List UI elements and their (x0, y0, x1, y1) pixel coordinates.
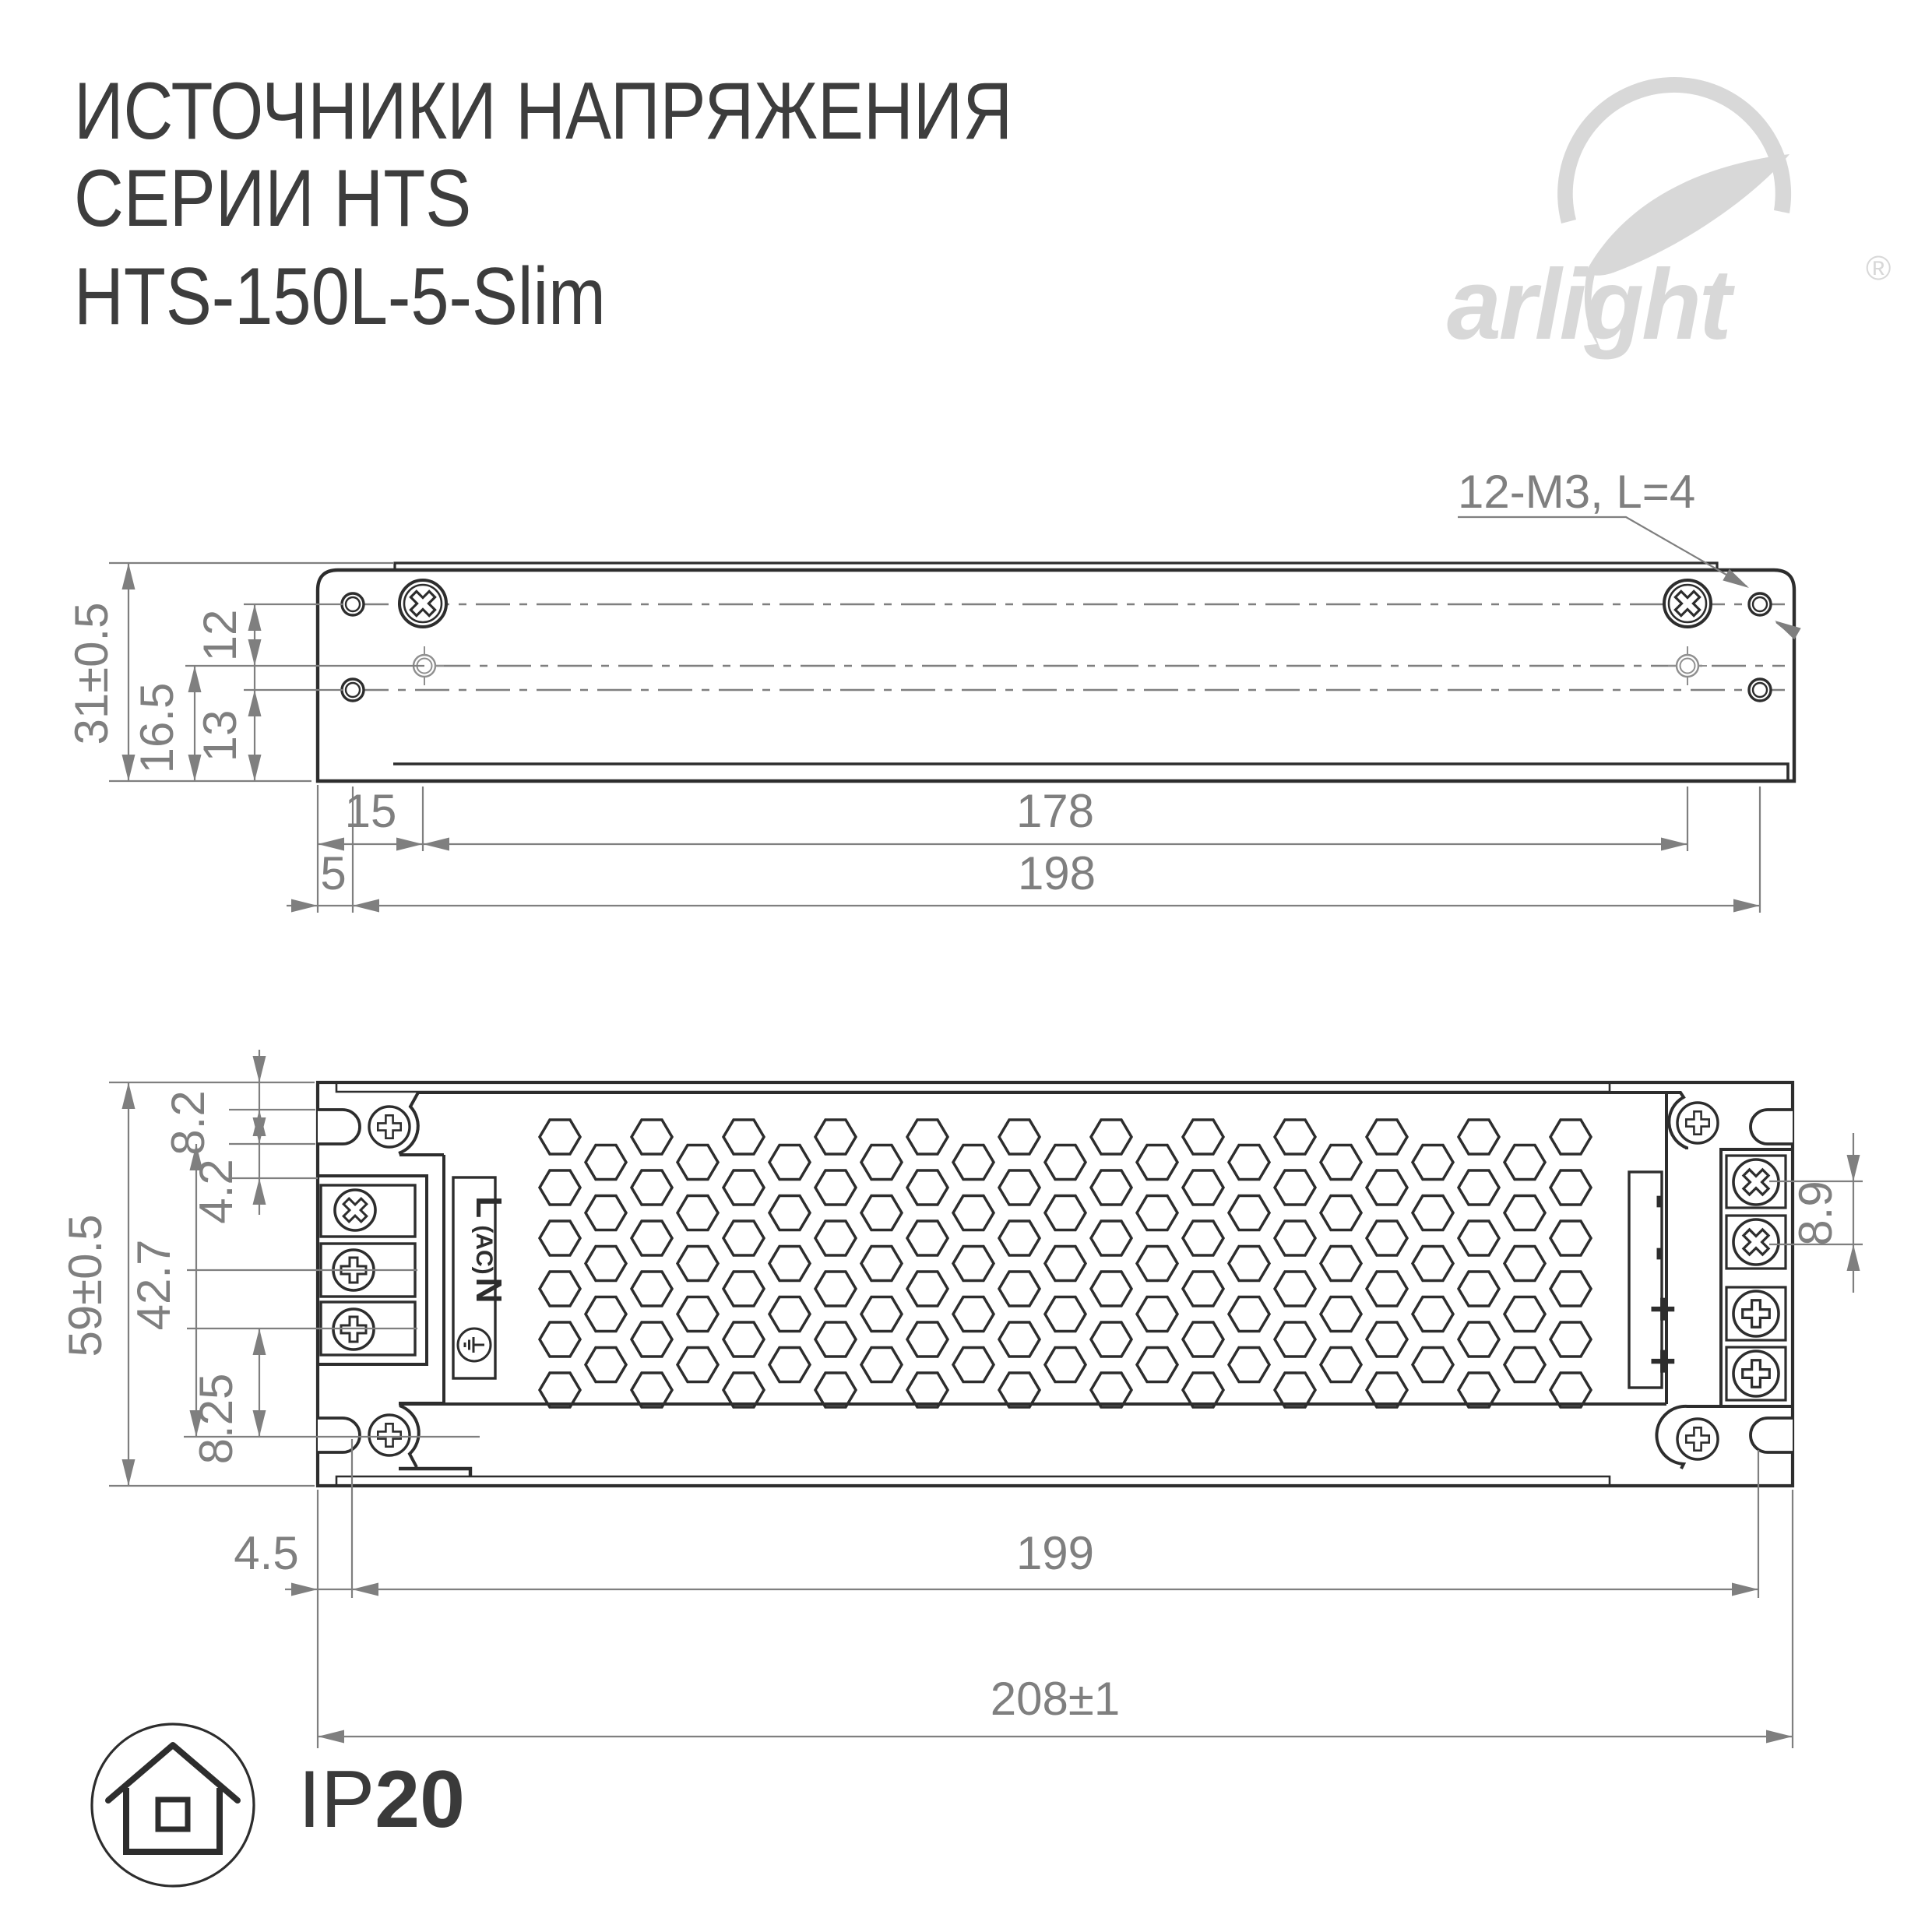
input-label-line: L (469, 1196, 509, 1218)
chassis-screw-icon (1677, 1103, 1718, 1143)
hex-vent-hole (1459, 1322, 1499, 1357)
hex-vent-hole (999, 1120, 1040, 1154)
dim-side-height: 31±0.5 (65, 602, 118, 744)
hex-vent-hole (1091, 1272, 1131, 1306)
hex-vent-hole (1413, 1247, 1453, 1281)
thread-hole (1668, 646, 1707, 685)
hex-vent-hole (1229, 1297, 1269, 1332)
hex-vent-hole (1413, 1297, 1453, 1332)
dim-top-8-25: 8.25 (190, 1374, 242, 1465)
dim-side-178: 178 (1016, 785, 1094, 837)
mounting-hole (1749, 679, 1771, 701)
hex-vent-hole (907, 1120, 948, 1154)
hex-vent-hole (907, 1170, 948, 1205)
hex-vent-hole (632, 1272, 672, 1306)
dim-side-198: 198 (1018, 847, 1096, 899)
hex-vent-hole (1183, 1221, 1223, 1255)
hex-vent-hole (815, 1120, 856, 1154)
hex-vent-hole (1550, 1170, 1591, 1205)
hex-vent-hole (1459, 1373, 1499, 1407)
hex-vent-hole (540, 1322, 580, 1357)
input-label-ac: (AC) (471, 1225, 497, 1274)
chassis-screw-icon (1677, 1419, 1718, 1459)
hex-vent-hole (540, 1373, 580, 1407)
hex-vent-hole (861, 1297, 902, 1332)
hex-vent-hole (1229, 1145, 1269, 1180)
input-label-panel: L (AC) N (453, 1177, 509, 1378)
hex-vent-hole (586, 1196, 626, 1230)
hex-vent-hole (1367, 1373, 1407, 1407)
hex-vent-hole (953, 1145, 994, 1180)
hex-vent-hole (1091, 1170, 1131, 1205)
case-screw-icon (399, 580, 446, 627)
hex-vent-hole (677, 1297, 718, 1332)
mounting-hole (342, 679, 364, 701)
hex-vent-hole (953, 1247, 994, 1281)
brand-logo-swoosh-icon (1557, 77, 1791, 350)
hex-vent-hole (632, 1322, 672, 1357)
hex-vent-hole (1091, 1120, 1131, 1154)
hex-vent-hole (907, 1322, 948, 1357)
hex-vent-hole (723, 1221, 764, 1255)
hex-vent-hole (1413, 1196, 1453, 1230)
hex-vent-hole (1459, 1120, 1499, 1154)
hex-vent-hole (815, 1170, 856, 1205)
technical-drawing: 12-M3, L=4 31±0.5 16.5 12 13 15 178 5 19… (0, 0, 1932, 1932)
hex-vent-hole (999, 1221, 1040, 1255)
hex-vent-hole (723, 1272, 764, 1306)
hex-vent-hole (907, 1373, 948, 1407)
hex-vent-hole (723, 1170, 764, 1205)
ventilation-hex-pattern (540, 1120, 1591, 1407)
hex-vent-hole (769, 1145, 810, 1180)
hex-vent-hole (1275, 1170, 1315, 1205)
hex-vent-hole (1321, 1348, 1361, 1382)
hex-vent-hole (1045, 1348, 1086, 1382)
hex-vent-hole (723, 1373, 764, 1407)
output-screw-icon (1733, 1351, 1779, 1396)
hex-vent-hole (1183, 1170, 1223, 1205)
hex-vent-hole (540, 1221, 580, 1255)
hex-vent-hole (769, 1247, 810, 1281)
top-view-drawing: L (AC) N (59, 1050, 1863, 1748)
hex-vent-hole (999, 1170, 1040, 1205)
hex-vent-hole (677, 1348, 718, 1382)
hex-vent-hole (1183, 1373, 1223, 1407)
hex-vent-hole (953, 1348, 994, 1382)
hex-vent-hole (1413, 1145, 1453, 1180)
hex-vent-hole (861, 1196, 902, 1230)
hex-vent-hole (1367, 1322, 1407, 1357)
hex-vent-hole (999, 1272, 1040, 1306)
hex-vent-hole (1550, 1221, 1591, 1255)
output-label-minus: - (1638, 1246, 1688, 1261)
hex-vent-hole (769, 1348, 810, 1382)
hex-vent-hole (1504, 1196, 1545, 1230)
hex-vent-hole (1137, 1348, 1177, 1382)
hex-vent-hole (1275, 1322, 1315, 1357)
chassis-screw-icon (369, 1415, 410, 1455)
hex-vent-hole (907, 1221, 948, 1255)
hex-vent-hole (1321, 1247, 1361, 1281)
mounting-hole (342, 593, 364, 615)
hex-vent-hole (815, 1322, 856, 1357)
hex-vent-hole (953, 1196, 994, 1230)
hex-vent-hole (540, 1120, 580, 1154)
hex-vent-hole (586, 1145, 626, 1180)
hex-vent-hole (1275, 1272, 1315, 1306)
datasheet-page: ИСТОЧНИКИ НАПРЯЖЕНИЯ СЕРИИ HTS HTS-150L-… (0, 0, 1932, 1932)
hex-vent-hole (632, 1170, 672, 1205)
hex-vent-hole (815, 1221, 856, 1255)
hex-vent-hole (1091, 1322, 1131, 1357)
output-label-plus: + (1638, 1296, 1688, 1322)
hex-vent-hole (1137, 1247, 1177, 1281)
indoor-use-icon (92, 1724, 254, 1886)
hex-vent-hole (1367, 1221, 1407, 1255)
case-screw-icon (1664, 580, 1711, 627)
hex-vent-hole (1229, 1247, 1269, 1281)
hex-vent-hole (586, 1247, 626, 1281)
mounting-hole (1749, 593, 1771, 615)
hex-vent-hole (1091, 1221, 1131, 1255)
hex-vent-hole (1229, 1348, 1269, 1382)
hex-vent-hole (1504, 1247, 1545, 1281)
hex-vent-hole (1275, 1120, 1315, 1154)
hex-vent-hole (1137, 1145, 1177, 1180)
dim-top-199: 199 (1016, 1527, 1094, 1579)
dim-thread-label: 12-M3, L=4 (1458, 466, 1695, 518)
hex-vent-hole (632, 1221, 672, 1255)
hex-vent-hole (723, 1322, 764, 1357)
hex-vent-hole (861, 1348, 902, 1382)
output-screw-icon (1733, 1291, 1779, 1336)
hex-vent-hole (999, 1373, 1040, 1407)
hex-vent-hole (1459, 1221, 1499, 1255)
dim-top-8-2: 8.2 (162, 1090, 214, 1155)
output-label-panel: - - + + (1629, 1172, 1688, 1388)
ground-icon (458, 1328, 491, 1361)
dim-top-4-5: 4.5 (234, 1527, 298, 1579)
hex-vent-hole (1045, 1247, 1086, 1281)
hex-vent-hole (1183, 1322, 1223, 1357)
dim-top-width: 208±1 (991, 1673, 1120, 1725)
dim-side-12: 12 (194, 610, 246, 662)
hex-vent-hole (677, 1196, 718, 1230)
hex-vent-hole (1504, 1348, 1545, 1382)
hex-vent-hole (907, 1272, 948, 1306)
hex-vent-hole (1045, 1196, 1086, 1230)
dim-top-4-2: 4.2 (190, 1159, 242, 1223)
hex-vent-hole (1321, 1196, 1361, 1230)
hex-vent-hole (1091, 1373, 1131, 1407)
chassis-screw-icon (369, 1107, 410, 1147)
hex-vent-hole (677, 1145, 718, 1180)
hex-vent-hole (815, 1272, 856, 1306)
hex-vent-hole (953, 1297, 994, 1332)
hex-vent-hole (1321, 1145, 1361, 1180)
hex-vent-hole (1413, 1348, 1453, 1382)
hex-vent-hole (1183, 1120, 1223, 1154)
hex-vent-hole (1459, 1272, 1499, 1306)
hex-vent-hole (1459, 1170, 1499, 1205)
hex-vent-hole (1504, 1297, 1545, 1332)
hex-vent-hole (677, 1247, 718, 1281)
hex-vent-hole (540, 1272, 580, 1306)
hex-vent-hole (861, 1145, 902, 1180)
dim-top-8-9: 8.9 (1789, 1181, 1842, 1245)
hex-vent-hole (632, 1120, 672, 1154)
hex-vent-hole (999, 1322, 1040, 1357)
side-view-drawing: 12-M3, L=4 31±0.5 16.5 12 13 15 178 5 19… (65, 466, 1801, 913)
output-label-minus: - (1638, 1194, 1688, 1209)
hex-vent-hole (586, 1348, 626, 1382)
hex-vent-hole (1550, 1272, 1591, 1306)
hex-vent-hole (1229, 1196, 1269, 1230)
hex-vent-hole (1550, 1120, 1591, 1154)
dim-top-height: 59±0.5 (59, 1214, 111, 1357)
hex-vent-hole (861, 1247, 902, 1281)
dim-side-15: 15 (345, 785, 397, 837)
hex-vent-hole (769, 1196, 810, 1230)
hex-vent-hole (815, 1373, 856, 1407)
hex-vent-hole (1367, 1120, 1407, 1154)
dim-side-16-5: 16.5 (131, 683, 183, 774)
hex-vent-hole (1045, 1297, 1086, 1332)
hex-vent-hole (1045, 1145, 1086, 1180)
hex-vent-hole (1137, 1196, 1177, 1230)
hex-vent-hole (1367, 1170, 1407, 1205)
hex-vent-hole (1275, 1221, 1315, 1255)
output-screw-icon (1733, 1219, 1779, 1265)
hex-vent-hole (1367, 1272, 1407, 1306)
dim-side-5: 5 (320, 847, 346, 899)
hex-vent-hole (769, 1297, 810, 1332)
input-screw-icon (335, 1190, 375, 1230)
dim-top-42-7: 42.7 (128, 1240, 180, 1331)
input-label-neutral: N (469, 1277, 509, 1303)
hex-vent-hole (723, 1120, 764, 1154)
hex-vent-hole (1321, 1297, 1361, 1332)
output-terminal-block (1721, 1149, 1793, 1406)
hex-vent-hole (540, 1170, 580, 1205)
hex-vent-hole (632, 1373, 672, 1407)
hex-vent-hole (1504, 1145, 1545, 1180)
output-label-plus: + (1638, 1348, 1688, 1374)
hex-vent-hole (586, 1297, 626, 1332)
dim-side-13: 13 (194, 710, 246, 762)
hex-vent-hole (1275, 1373, 1315, 1407)
hex-vent-hole (1137, 1297, 1177, 1332)
hex-vent-hole (1183, 1272, 1223, 1306)
hex-vent-hole (1550, 1322, 1591, 1357)
hex-vent-hole (1550, 1373, 1591, 1407)
